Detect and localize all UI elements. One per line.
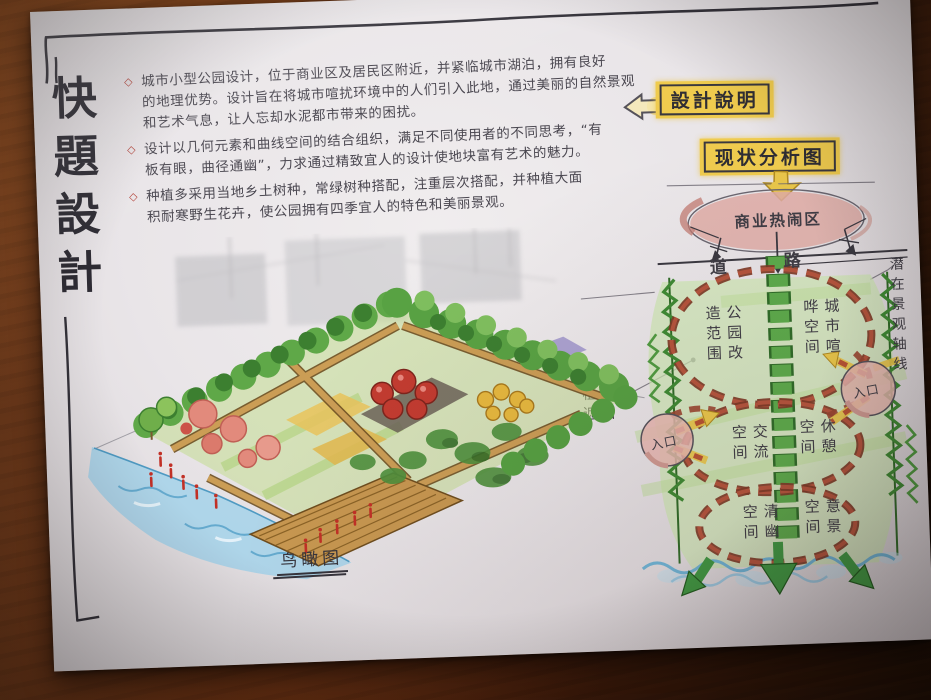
zone1-right-label: 城市喧哗空间 xyxy=(799,297,843,362)
zone3-left-label: 清幽空间 xyxy=(739,503,783,551)
zone2-right-label: 休憩空间 xyxy=(795,418,839,466)
perspective-drawing-svg xyxy=(54,222,652,595)
title-bottom-tick xyxy=(76,617,99,621)
road-label-right: 路 xyxy=(783,246,801,272)
bullet-diamond-icon: ◇ xyxy=(124,75,133,88)
analysis-callout: 现状分析图 xyxy=(700,137,840,175)
analysis-label: 现状分析图 xyxy=(704,140,836,172)
photo-of-design-board: 快題設計 ◇ 城市小型公园设计，位于商业区及居民区附近，并紧临城市湖泊，拥有良好… xyxy=(0,0,931,700)
design-note-callout: 設計說明 xyxy=(656,80,774,118)
sketch-paper: 快題設計 ◇ 城市小型公园设计，位于商业区及居民区附近，并紧临城市湖泊，拥有良好… xyxy=(30,0,931,672)
road-label-left: 道 xyxy=(709,253,727,279)
perspective-caption: 鸟瞰图 xyxy=(275,543,348,576)
zone1-left-label: 公园改造范围 xyxy=(701,304,745,369)
zone2-left-label: 交流空间 xyxy=(728,423,772,471)
zone3-right-label: 意景空间 xyxy=(800,498,844,546)
bullet-diamond-icon: ◇ xyxy=(129,190,138,203)
bullet-diamond-icon: ◇ xyxy=(127,143,136,156)
design-note-label: 設計說明 xyxy=(660,83,770,115)
top-border-line xyxy=(45,3,879,38)
analysis-top-zone-label: 商业热闹区 xyxy=(728,207,829,233)
